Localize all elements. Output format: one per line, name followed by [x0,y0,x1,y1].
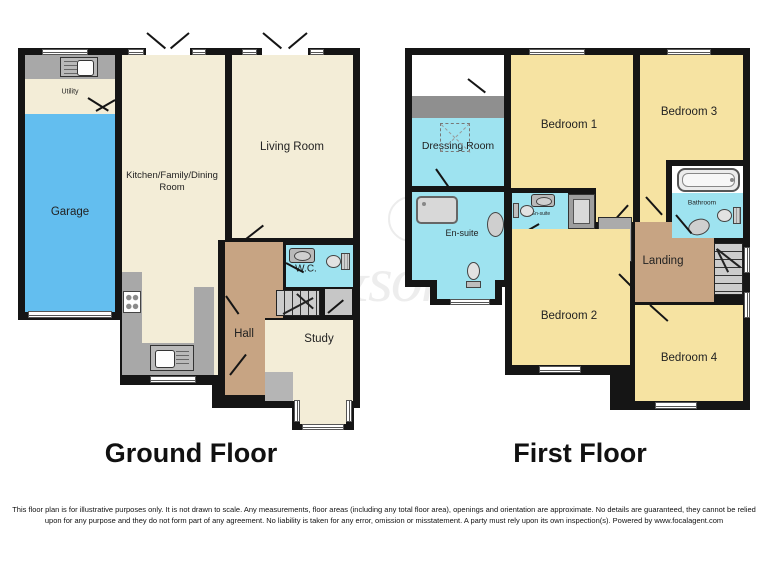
skylight-symbol [440,123,470,152]
disclaimer-text: This floor plan is for illustrative purp… [4,504,764,527]
window [667,49,711,55]
bath-tap [730,178,734,182]
void-area [412,55,504,96]
window [450,299,490,305]
window [655,402,697,409]
sink-icon [531,194,555,207]
shower-cubicle [568,194,595,229]
shower-tray [416,196,458,224]
ground-floor-title: Ground Floor [105,438,277,469]
room-bedroom-2 [512,229,630,365]
first-floor-title: First Floor [513,438,647,469]
ensuite-main-label: En-suite [445,228,478,238]
bedroom-1-label: Bedroom 1 [541,119,597,131]
stairs [714,243,743,295]
ensuite-small-label: En-suite [532,211,550,217]
window [744,292,750,318]
first-floor-plan: Dressing Room En-suite Bedroom 1 Bedroom [0,0,768,576]
bedroom-2-label: Bedroom 2 [541,310,597,322]
bathroom-label: Bathroom [688,200,716,207]
bedroom-3-label: Bedroom 3 [661,106,717,118]
wardrobe-strip [412,96,504,118]
floor-plan-page: fox&sons Utility Garage Kitchen/Family/D… [0,0,768,576]
sink-icon [487,212,504,237]
window [744,247,750,273]
window [529,49,585,55]
bedroom-4-label: Bedroom 4 [661,352,717,364]
window [539,366,581,373]
landing-label: Landing [643,255,684,267]
